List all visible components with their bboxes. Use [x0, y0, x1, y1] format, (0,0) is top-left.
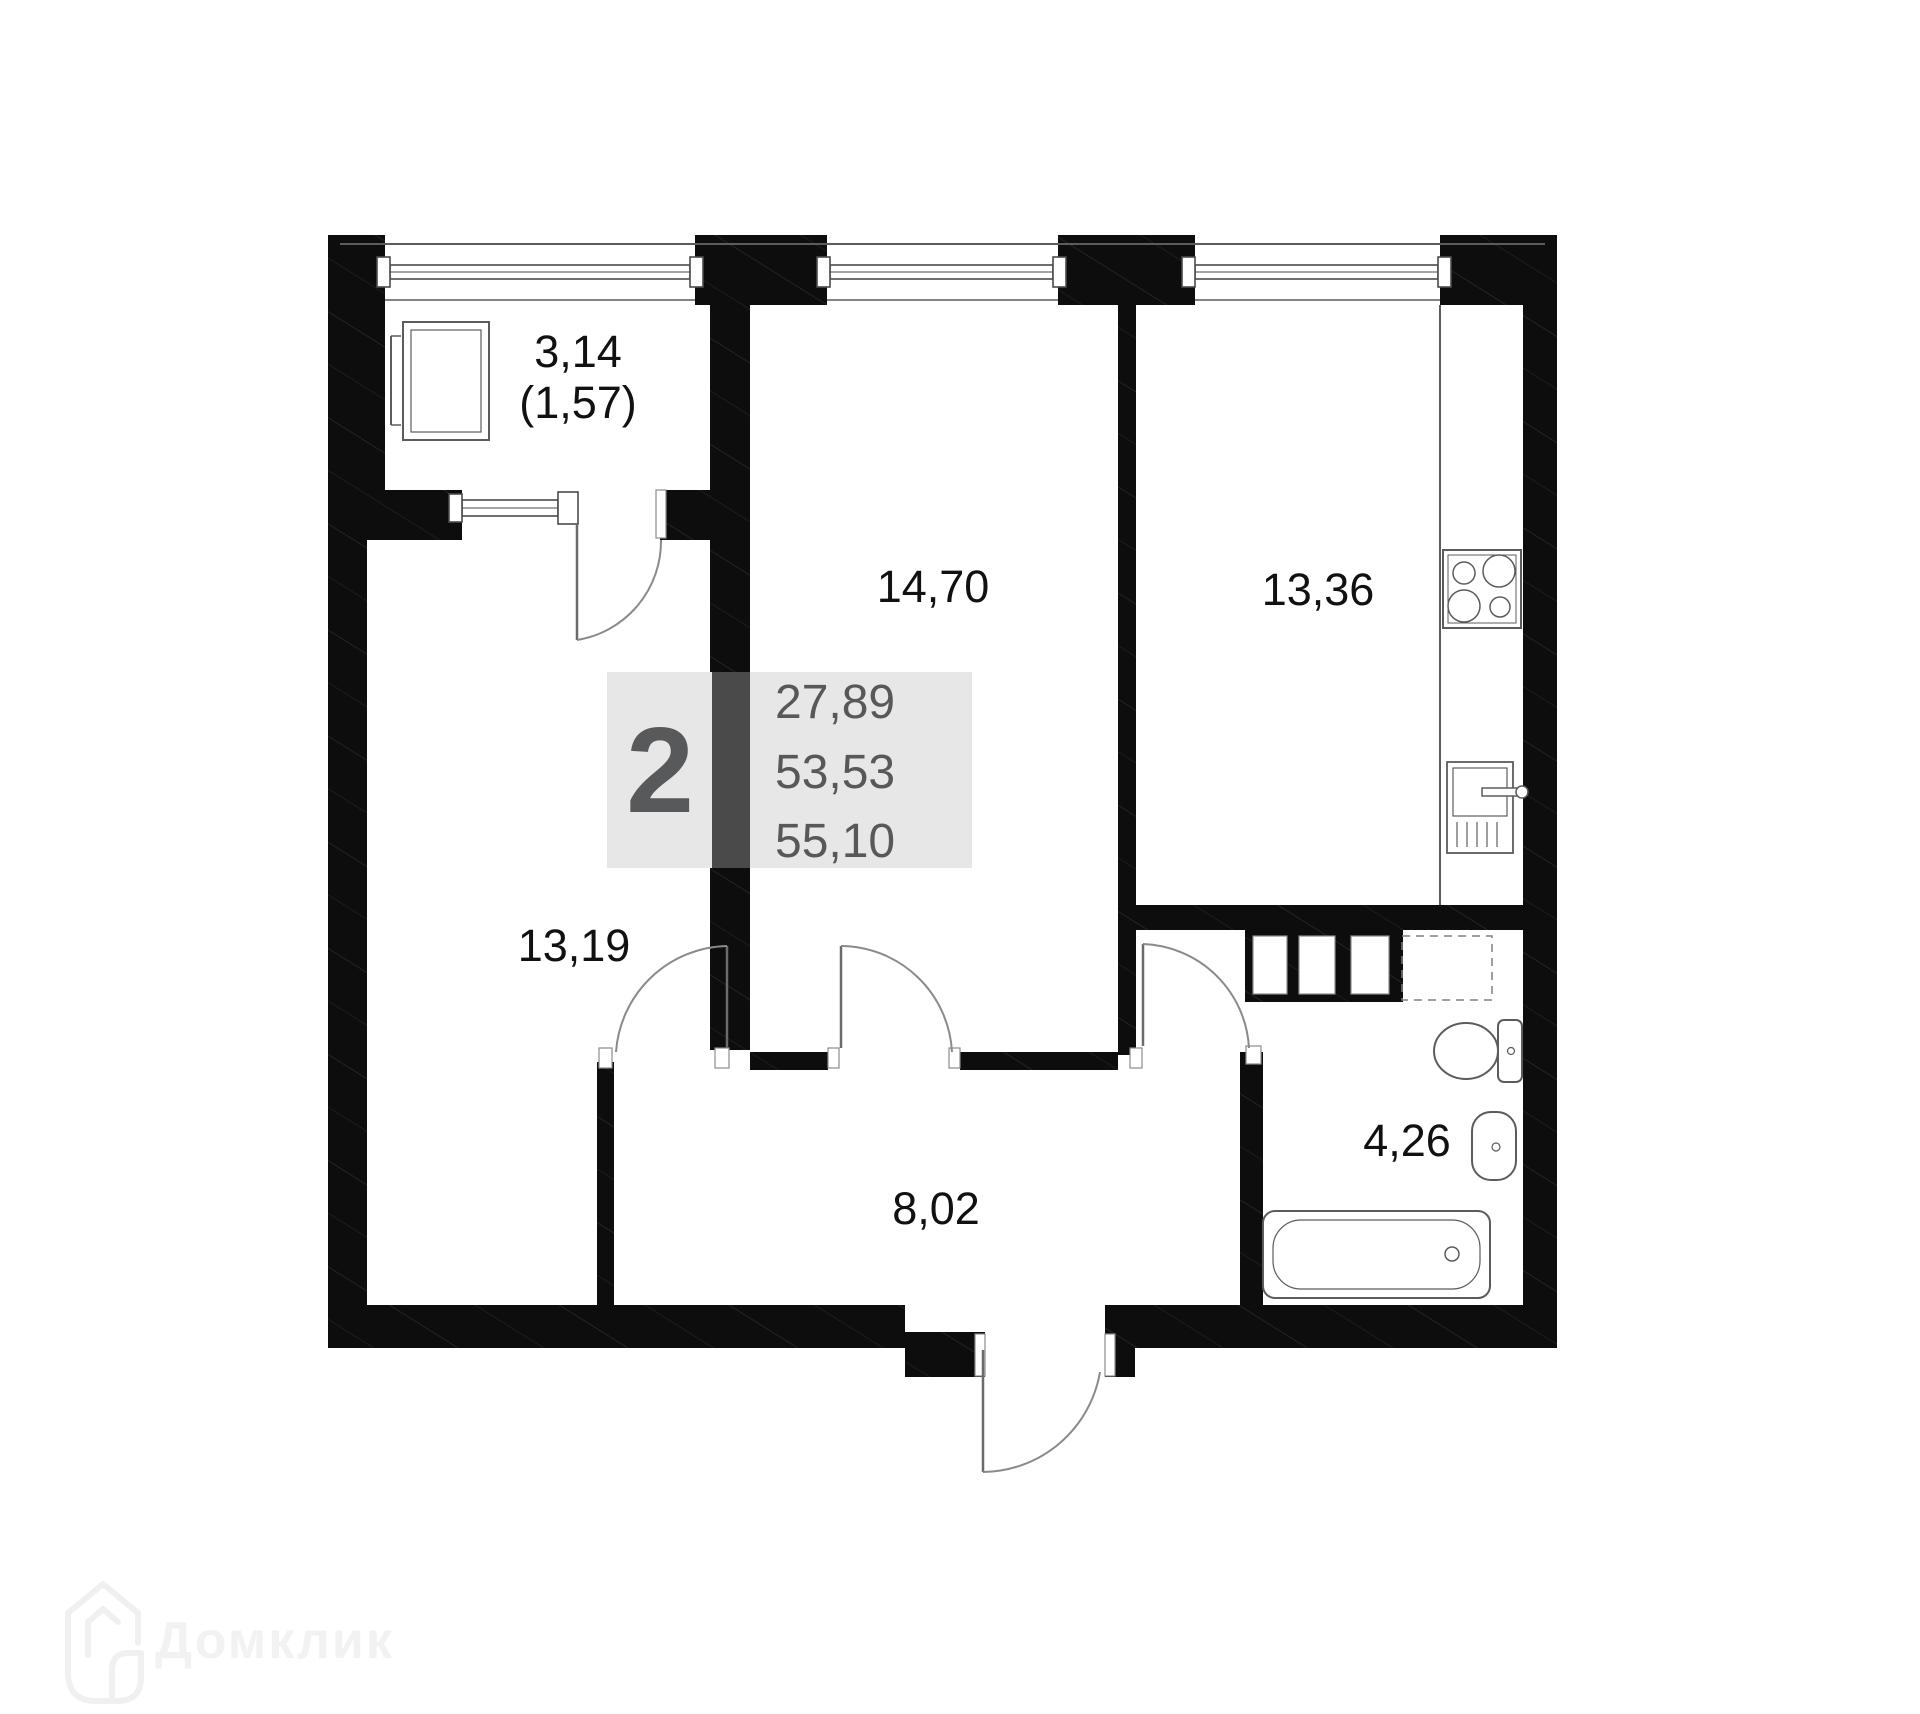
- hallway-area-label: 8,02: [892, 1183, 980, 1234]
- closet-cells: [1253, 936, 1389, 994]
- stove-icon: [1443, 550, 1521, 628]
- closet-cell-3: [1351, 936, 1389, 994]
- kitchen-window: [1182, 257, 1451, 287]
- wall-top-pillar-mid: [1058, 235, 1195, 305]
- closet-cell-2: [1299, 936, 1335, 994]
- bedroom-area-label: 14,70: [877, 561, 990, 612]
- wall-top-pillar-a: [695, 235, 827, 305]
- living-area-value: 27,89: [775, 676, 895, 729]
- balcony-door-arc: [577, 540, 661, 640]
- living-room-area-label: 13,19: [518, 920, 631, 971]
- floor-plan-svg: 3,14 (1,57) 14,70 13,36 13,19 8,02 4,26 …: [0, 0, 1920, 1714]
- balcony-planter-icon: [391, 322, 489, 440]
- wall-kitchen-bathroom: [1135, 905, 1523, 930]
- domklik-wordmark: Домклик: [155, 1612, 394, 1670]
- wall-bedroom-kitchen: [1118, 302, 1136, 1055]
- bathroom-door: [1130, 944, 1261, 1068]
- bedroom-window: [817, 257, 1066, 287]
- floor-plan-page: 3,14 (1,57) 14,70 13,36 13,19 8,02 4,26 …: [0, 0, 1920, 1714]
- balcony-window: [377, 257, 703, 287]
- total-area-value: 55,10: [775, 815, 895, 868]
- wall-left: [328, 540, 367, 1348]
- wall-balcony-bottom-b: [660, 490, 712, 540]
- bathtub-icon: [1263, 1211, 1490, 1298]
- balcony-door-window: [449, 490, 666, 640]
- wall-living-lower: [597, 1062, 614, 1305]
- balcony-reduced-area-label: (1,57): [519, 377, 637, 428]
- closet-cell-1: [1253, 936, 1287, 994]
- wall-hall-top-b: [960, 1052, 1118, 1070]
- toilet-icon: [1434, 1020, 1522, 1082]
- wall-entrance-bay-left: [905, 1332, 985, 1377]
- info-block-wall-strip: [712, 672, 750, 868]
- wall-hall-top-a: [750, 1052, 828, 1070]
- wall-bottom-left: [328, 1305, 905, 1348]
- area-no-balcony-value: 53,53: [775, 746, 895, 799]
- wall-bathroom-west: [1240, 1052, 1263, 1305]
- wall-balcony-bottom-a: [365, 490, 462, 540]
- bathroom-area-label: 4,26: [1363, 1115, 1451, 1166]
- entrance-door: [975, 1334, 1115, 1472]
- domklik-house-icon: [68, 1584, 141, 1701]
- kitchen-sink-icon: [1447, 762, 1528, 853]
- washbasin-icon: [1472, 1112, 1516, 1180]
- info-block: 2 27,89 53,53 55,10: [607, 672, 972, 868]
- balcony-area-label: 3,14: [534, 326, 622, 377]
- washer-dashed-outline: [1402, 936, 1492, 1000]
- kitchen-area-label: 13,36: [1262, 564, 1375, 615]
- bedroom-door: [828, 946, 960, 1068]
- wall-bottom-right: [1105, 1305, 1557, 1348]
- watermark: Домклик: [68, 1584, 394, 1701]
- room-count: 2: [626, 702, 694, 838]
